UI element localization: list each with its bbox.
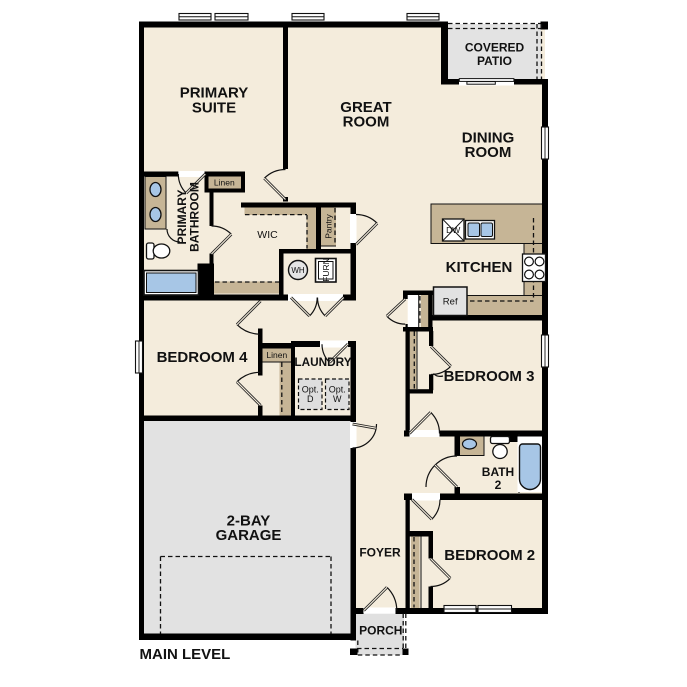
svg-text:Linen: Linen	[266, 350, 287, 360]
svg-text:FURN: FURN	[321, 258, 331, 282]
svg-text:W: W	[333, 394, 342, 404]
svg-text:Pantry: Pantry	[323, 213, 333, 238]
svg-text:PATIO: PATIO	[477, 54, 512, 68]
svg-text:D: D	[307, 394, 314, 404]
svg-text:DW: DW	[446, 225, 460, 235]
svg-text:WIC: WIC	[257, 229, 278, 241]
svg-text:WH: WH	[291, 266, 305, 275]
svg-text:2: 2	[495, 478, 502, 492]
svg-text:BEDROOM 2: BEDROOM 2	[444, 547, 535, 564]
svg-text:BATHROOM: BATHROOM	[188, 182, 202, 252]
svg-text:BEDROOM 4: BEDROOM 4	[157, 349, 249, 366]
svg-text:PORCH: PORCH	[359, 623, 402, 637]
svg-text:SUITE: SUITE	[192, 100, 236, 117]
svg-text:KITCHEN: KITCHEN	[446, 259, 513, 276]
svg-text:Ref: Ref	[443, 297, 458, 308]
svg-text:MAIN LEVEL: MAIN LEVEL	[140, 646, 231, 663]
svg-text:ROOM: ROOM	[465, 144, 512, 161]
svg-text:COVERED: COVERED	[465, 40, 525, 54]
svg-text:Linen: Linen	[214, 178, 235, 188]
svg-text:ROOM: ROOM	[343, 113, 390, 130]
svg-text:FOYER: FOYER	[359, 545, 401, 559]
svg-text:GARAGE: GARAGE	[216, 527, 282, 544]
svg-text:BEDROOM 3: BEDROOM 3	[444, 368, 535, 385]
svg-text:LAUNDRY: LAUNDRY	[294, 355, 351, 369]
